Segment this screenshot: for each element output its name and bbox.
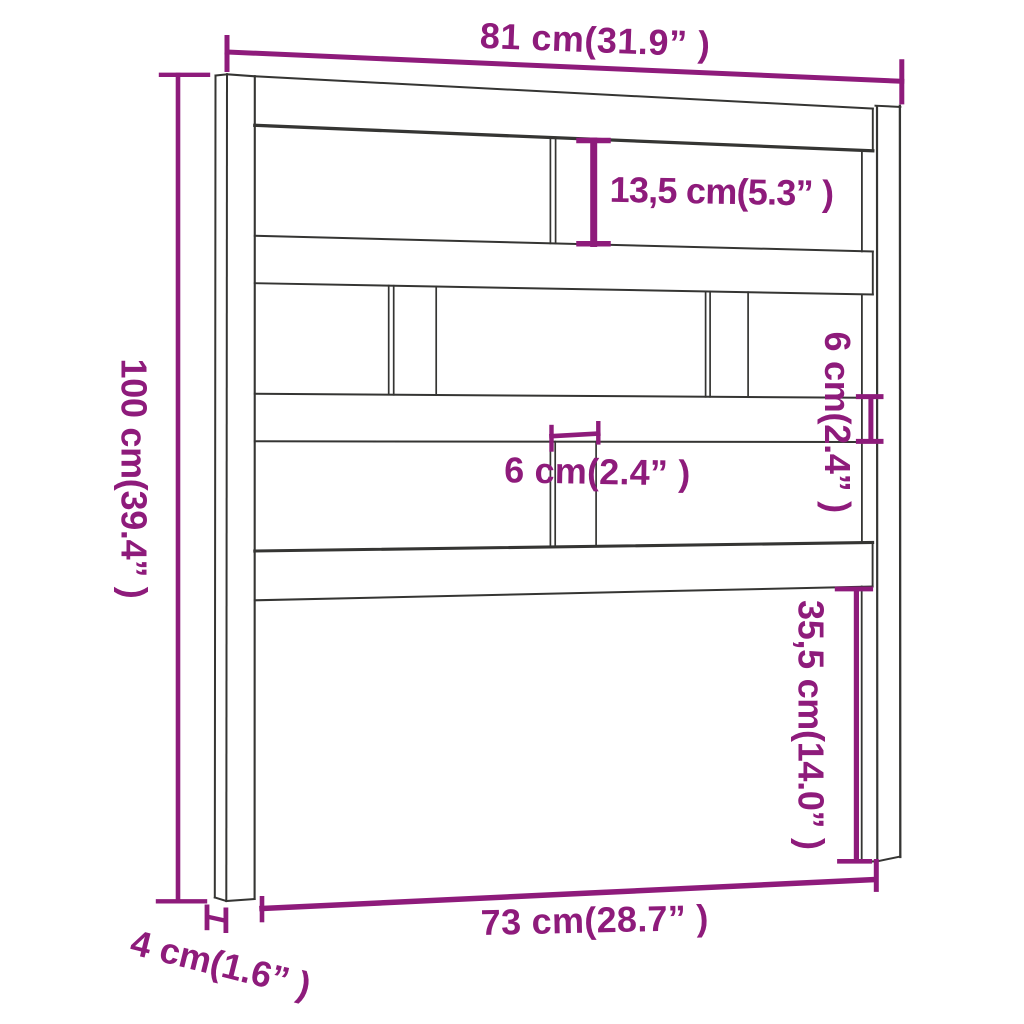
svg-text:13,5 cm(5.3” ): 13,5 cm(5.3” ) [609,169,833,214]
svg-text:35,5 cm(14.0” ): 35,5 cm(14.0” ) [790,600,831,850]
svg-text:100 cm(39.4” ): 100 cm(39.4” ) [114,359,155,599]
svg-text:73 cm(28.7” ): 73 cm(28.7” ) [480,897,709,943]
svg-text:6 cm(2.4” ): 6 cm(2.4” ) [504,449,691,493]
svg-text:6 cm(2.4” ): 6 cm(2.4” ) [817,332,858,513]
